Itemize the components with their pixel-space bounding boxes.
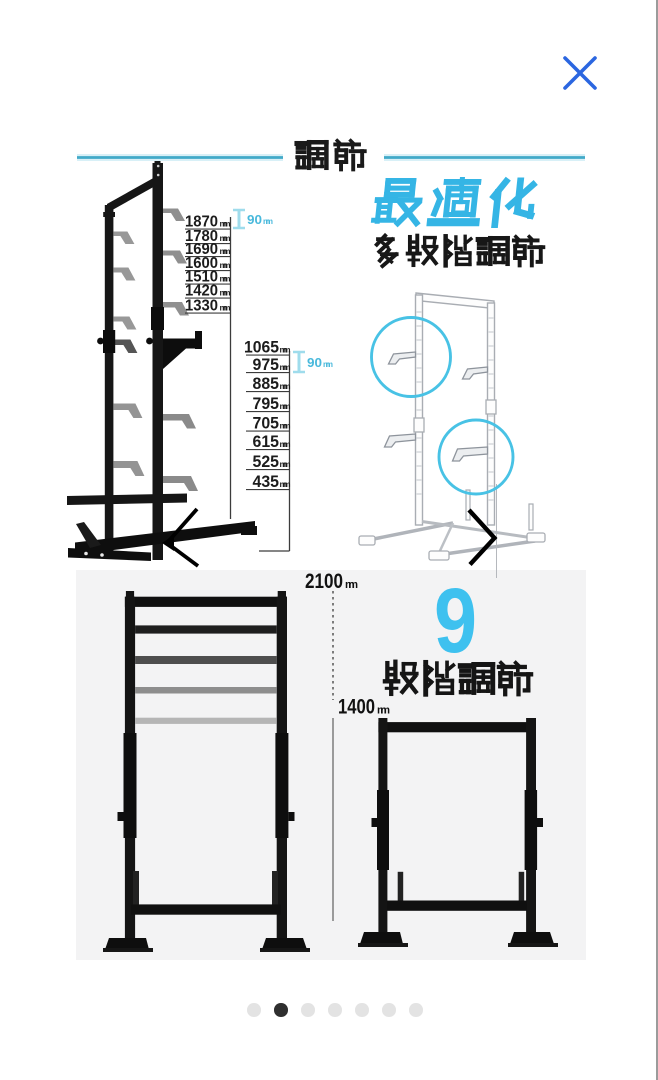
svg-text:mm: mm (280, 479, 291, 489)
svg-text:mm: mm (280, 381, 291, 391)
svg-text:90: 90 (247, 212, 262, 227)
svg-text:1065: 1065 (244, 339, 279, 357)
svg-text:1330: 1330 (185, 298, 218, 315)
svg-text:mm: mm (220, 246, 231, 256)
svg-text:mm: mm (220, 303, 231, 313)
svg-text:mm: mm (220, 288, 231, 298)
svg-text:mm: mm (345, 579, 358, 591)
svg-text:975: 975 (253, 356, 280, 374)
svg-text:90: 90 (307, 355, 322, 370)
svg-text:mm: mm (377, 705, 390, 717)
svg-text:795: 795 (253, 395, 280, 413)
svg-text:mm: mm (280, 362, 291, 372)
svg-text:mm: mm (263, 217, 273, 226)
svg-text:mm: mm (323, 360, 333, 369)
svg-text:mm: mm (220, 219, 231, 229)
svg-text:525: 525 (253, 453, 280, 471)
svg-text:mm: mm (220, 260, 231, 270)
svg-text:1400: 1400 (338, 696, 375, 719)
svg-text:2100: 2100 (305, 570, 343, 593)
svg-text:885: 885 (253, 375, 280, 393)
svg-text:mm: mm (280, 401, 291, 411)
svg-text:615: 615 (253, 433, 280, 451)
svg-text:mm: mm (280, 439, 291, 449)
svg-text:9: 9 (434, 570, 477, 672)
svg-text:mm: mm (280, 345, 291, 355)
svg-text:705: 705 (253, 415, 280, 433)
svg-text:435: 435 (253, 473, 280, 491)
svg-text:mm: mm (280, 459, 291, 469)
svg-text:mm: mm (220, 274, 231, 284)
svg-text:mm: mm (280, 421, 291, 431)
svg-text:mm: mm (220, 233, 231, 243)
